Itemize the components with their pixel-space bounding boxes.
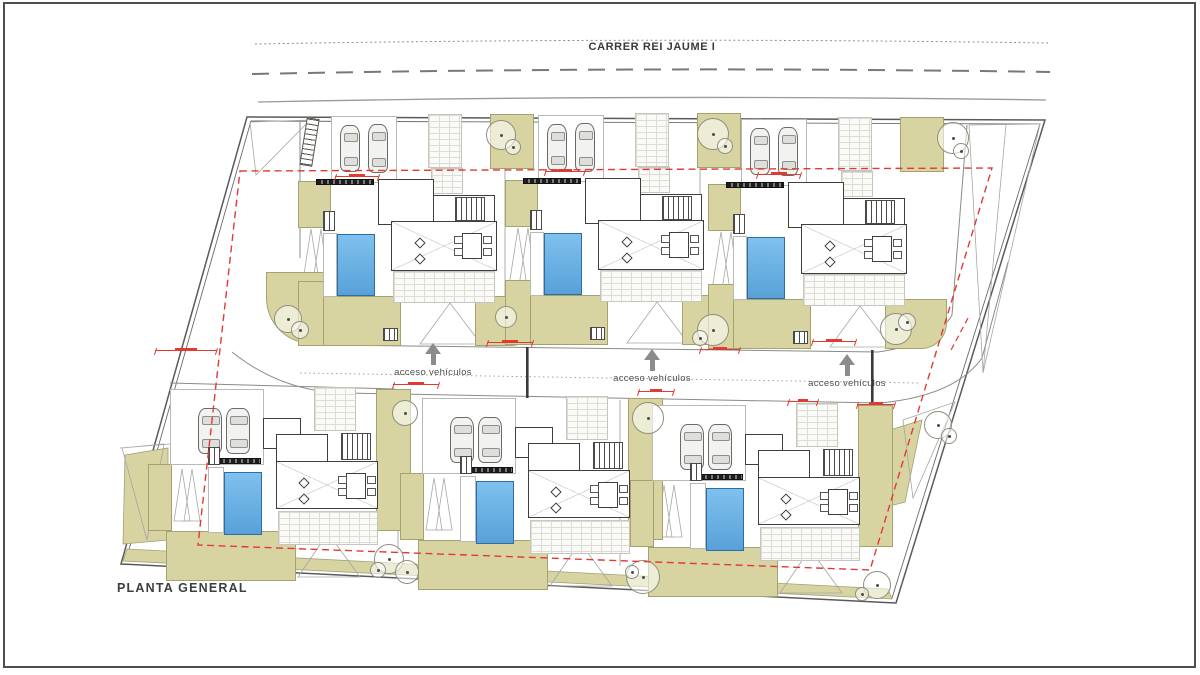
- chair: [661, 235, 670, 243]
- chair: [590, 485, 599, 493]
- chair: [864, 251, 873, 259]
- dimension-annotation: [487, 342, 533, 343]
- chair: [661, 247, 670, 255]
- tree-icon: [395, 560, 419, 584]
- tree-icon: [392, 400, 418, 426]
- terrace-paving: [431, 168, 463, 194]
- chair: [864, 239, 873, 247]
- chair: [619, 497, 628, 505]
- staircase: [823, 449, 853, 476]
- building-room: [528, 443, 580, 471]
- swimming-pool: [476, 481, 514, 544]
- arrow-stem: [431, 354, 436, 365]
- swimming-pool: [544, 233, 582, 295]
- villa-plot-villa-6: [630, 397, 875, 637]
- car-rear-window: [230, 439, 247, 448]
- dining-table: [872, 236, 892, 262]
- staircase: [341, 433, 371, 460]
- pool-deck: [208, 467, 224, 533]
- interior-wall: [641, 180, 643, 224]
- pergola-bar: [700, 474, 743, 480]
- lawn-area: [648, 547, 778, 597]
- chair: [454, 248, 463, 256]
- chair: [619, 485, 628, 493]
- car-rear-window: [551, 156, 566, 165]
- building-room: [276, 434, 328, 462]
- car-rear-window: [754, 160, 769, 169]
- chair: [367, 476, 376, 484]
- car-windshield: [454, 425, 471, 434]
- terrace-paving: [838, 117, 872, 171]
- car-icon: [547, 124, 567, 171]
- dining-table: [462, 233, 482, 259]
- chair: [849, 504, 858, 512]
- staircase: [733, 214, 745, 234]
- tree-icon: [632, 402, 664, 434]
- tree-icon: [505, 139, 521, 155]
- chair: [893, 239, 902, 247]
- car-rear-window: [372, 158, 387, 167]
- access-vehicles-label: acceso vehículos: [613, 373, 691, 384]
- car-windshield: [782, 135, 797, 144]
- tree-icon: [370, 562, 386, 578]
- car-icon: [226, 408, 250, 454]
- lawn-area: [400, 473, 424, 540]
- interior-wall: [844, 184, 846, 228]
- villa-plot-villa-3: [708, 114, 953, 354]
- arrow-stem: [650, 360, 655, 371]
- dimension-annotation: [545, 171, 585, 172]
- pergola-bar: [470, 467, 513, 473]
- car-windshield: [684, 432, 701, 441]
- chair: [338, 488, 347, 496]
- terrace-paving: [796, 403, 838, 447]
- chair: [820, 492, 829, 500]
- swimming-pool: [747, 237, 785, 299]
- staircase: [793, 331, 808, 344]
- chair: [690, 235, 699, 243]
- car-windshield: [344, 133, 359, 142]
- interior-wall: [434, 181, 436, 225]
- dimension-annotation: [155, 350, 217, 351]
- car-icon: [708, 424, 732, 470]
- car-windshield: [230, 416, 247, 425]
- terrace-paving: [841, 171, 873, 197]
- lawn-area: [148, 464, 172, 531]
- swimming-pool: [706, 488, 744, 551]
- dimension-annotation: [788, 401, 818, 402]
- staircase: [530, 210, 542, 230]
- car-icon: [750, 128, 770, 175]
- staircase: [460, 456, 472, 474]
- tree-icon: [291, 321, 309, 339]
- pergola-bar: [523, 178, 581, 184]
- terrace-paving: [278, 511, 378, 545]
- car-icon: [368, 124, 388, 173]
- pool-deck: [460, 476, 476, 542]
- tree-icon: [953, 143, 969, 159]
- tree-icon: [941, 428, 957, 444]
- arrow-head: [644, 349, 660, 360]
- access-vehicles-label: acceso vehículos: [394, 367, 472, 378]
- staircase: [208, 447, 220, 465]
- building-room: [585, 178, 641, 224]
- swimming-pool: [337, 234, 375, 296]
- chair: [690, 247, 699, 255]
- staircase: [865, 200, 895, 224]
- lawn-area: [166, 531, 296, 581]
- car-windshield: [712, 432, 729, 441]
- dining-table: [669, 232, 689, 258]
- dimension-annotation: [638, 391, 674, 392]
- terrace-paving: [803, 274, 905, 306]
- terrace-paving: [760, 527, 860, 561]
- staircase: [383, 328, 398, 341]
- chair: [338, 476, 347, 484]
- dimension-annotation: [757, 174, 801, 175]
- lawn-area: [858, 405, 893, 547]
- car-windshield: [551, 132, 566, 141]
- pergola-bar: [218, 458, 261, 464]
- staircase: [590, 327, 605, 340]
- tree-icon: [692, 330, 708, 346]
- interior-wall: [529, 445, 531, 471]
- pergola-bar: [316, 179, 374, 185]
- staircase: [323, 211, 335, 231]
- tree-icon: [717, 138, 733, 154]
- pool-deck: [323, 233, 337, 297]
- chair: [893, 251, 902, 259]
- car-icon: [778, 127, 798, 176]
- car-rear-window: [782, 161, 797, 170]
- tree-icon: [855, 587, 869, 601]
- interior-wall: [277, 436, 279, 462]
- lawn-area: [418, 540, 548, 590]
- building-room: [758, 450, 810, 478]
- terrace-paving: [428, 114, 462, 168]
- chair: [820, 504, 829, 512]
- interior-wall: [759, 452, 761, 478]
- street-curb: [258, 97, 1046, 102]
- tree-icon: [495, 306, 517, 328]
- arrow-stem: [845, 365, 850, 376]
- dining-table: [346, 473, 366, 499]
- dimension-annotation: [335, 176, 379, 177]
- villa-plot-villa-5: [400, 390, 645, 630]
- terrace-paving: [393, 271, 495, 303]
- staircase: [593, 442, 623, 469]
- car-icon: [478, 417, 502, 463]
- building-room: [788, 182, 844, 228]
- dimension-annotation: [393, 384, 439, 385]
- building-room: [378, 179, 434, 225]
- chair: [483, 248, 492, 256]
- swimming-pool: [224, 472, 262, 535]
- staircase: [455, 197, 485, 221]
- staircase: [690, 463, 702, 481]
- car-rear-window: [482, 448, 499, 457]
- pool-deck: [530, 232, 544, 296]
- tree-icon: [898, 313, 916, 331]
- dining-table: [598, 482, 618, 508]
- chair: [483, 236, 492, 244]
- car-icon: [575, 123, 595, 172]
- car-windshield: [202, 416, 219, 425]
- terrace-paving: [566, 396, 608, 440]
- terrace-paving: [635, 113, 669, 167]
- pool-deck: [733, 236, 747, 300]
- terrace-paving: [638, 167, 670, 193]
- access-arrow-icon: [424, 343, 442, 365]
- arrow-head: [839, 354, 855, 365]
- street-centerline: [252, 69, 1050, 74]
- pergola-bar: [726, 182, 784, 188]
- chair: [849, 492, 858, 500]
- tree-icon: [625, 565, 639, 579]
- terrace-paving: [530, 520, 630, 554]
- dining-table: [828, 489, 848, 515]
- lawn-area: [630, 480, 654, 547]
- car-icon: [340, 125, 360, 172]
- chair: [454, 236, 463, 244]
- dimension-annotation: [700, 349, 740, 350]
- car-rear-window: [712, 455, 729, 464]
- terrace-paving: [314, 387, 356, 431]
- arrow-head: [425, 343, 441, 354]
- access-vehicles-label: acceso vehículos: [808, 378, 886, 389]
- staircase: [662, 196, 692, 220]
- terrace-paving: [600, 270, 702, 302]
- access-arrow-icon: [643, 349, 661, 371]
- retaining-wall: [871, 350, 874, 404]
- car-rear-window: [344, 157, 359, 166]
- street-name: CARRER REI JAUME I: [589, 41, 716, 53]
- plan-title: PLANTA GENERAL: [117, 581, 248, 595]
- chair: [590, 497, 599, 505]
- dimension-annotation: [812, 341, 856, 342]
- car-windshield: [482, 425, 499, 434]
- car-rear-window: [579, 157, 594, 166]
- pool-deck: [690, 483, 706, 549]
- chair: [367, 488, 376, 496]
- access-arrow-icon: [838, 354, 856, 376]
- dimension-annotation: [857, 404, 895, 405]
- car-windshield: [754, 136, 769, 145]
- car-windshield: [372, 132, 387, 141]
- site-plan-sheet: CARRER REI JAUME I PLANTA GENERAL acceso…: [0, 0, 1200, 675]
- car-windshield: [579, 131, 594, 140]
